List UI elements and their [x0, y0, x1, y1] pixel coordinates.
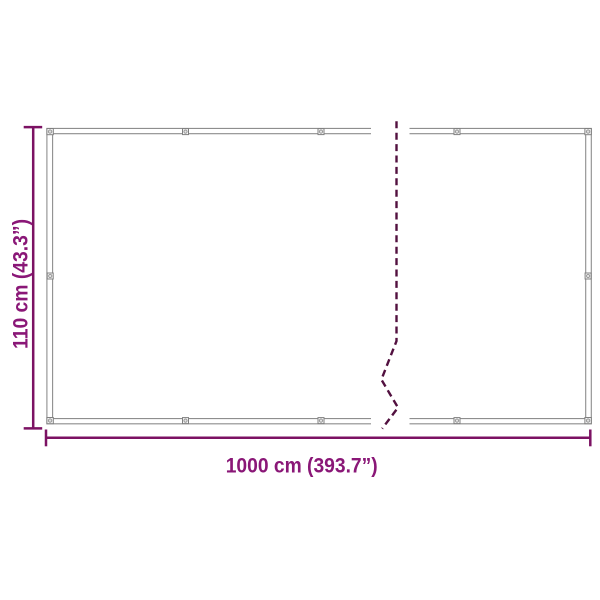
svg-text:110 cm (43.3”): 110 cm (43.3”) [8, 219, 32, 349]
svg-text:1000 cm (393.7”): 1000 cm (393.7”) [226, 454, 378, 478]
